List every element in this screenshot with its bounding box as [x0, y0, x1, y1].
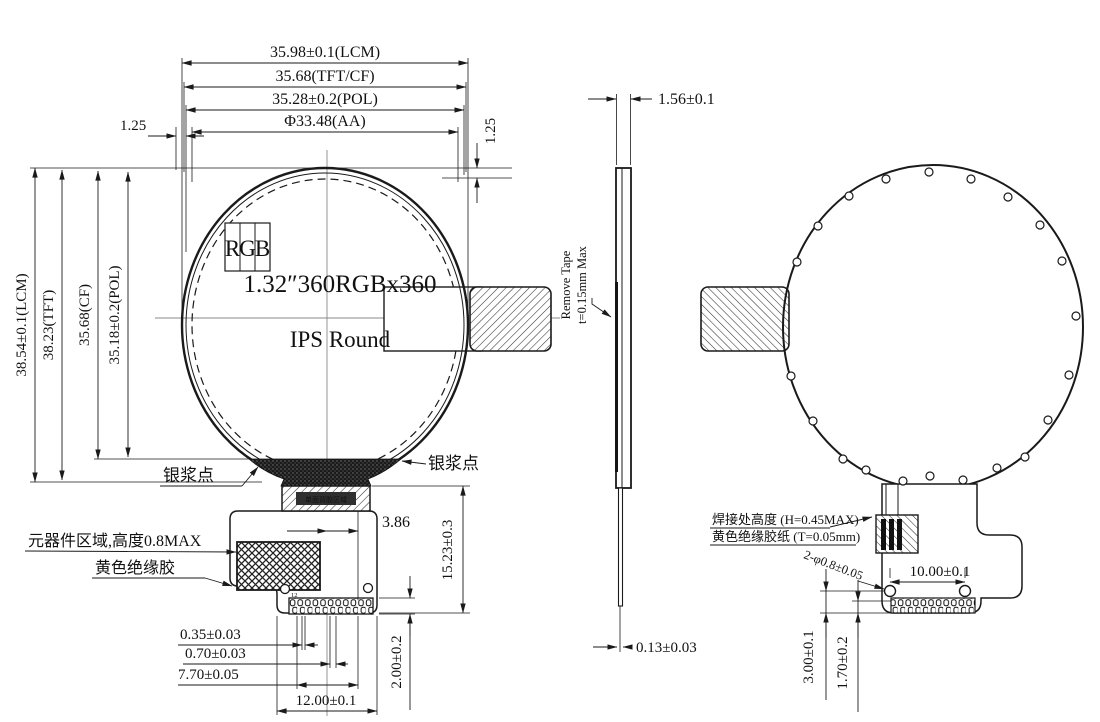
dim-lcm-width: 35.98±0.1(LCM): [270, 44, 380, 61]
rgb-g: G: [239, 236, 256, 261]
front-left-dimensions: 38.54±0.1(LCM) 38.23(TFT) 35.68(CF) 35.1…: [14, 168, 128, 482]
remove-tape-line2: t=0.15mm Max: [575, 245, 589, 324]
yellow-glue-label: 黄色绝缘胶: [95, 559, 175, 577]
back-bottom-dimensions: 3.00±0.1 1.70±0.2: [801, 569, 891, 712]
yellow-tape-label: 黄色绝缘胶纸 (T=0.05mm): [712, 529, 860, 544]
dim-pol-width: 35.28±0.2(POL): [272, 91, 378, 108]
component-area-labels: 元器件区域,高度0.8MAX 黄色绝缘胶: [25, 532, 236, 586]
dim-770: 7.70±0.05: [178, 667, 239, 683]
dim-pol-height: 35.18±0.2(POL): [107, 265, 123, 364]
adhesive-bar-label: 单面背胶区域: [305, 495, 347, 504]
dim-125-right: 1.25: [483, 118, 499, 144]
hole-callout: 2-φ0.8±0.05: [802, 548, 884, 589]
dim-1000: 10.00±0.1: [910, 564, 971, 580]
rgb-b: B: [255, 236, 270, 261]
component-area-rect: [237, 542, 320, 590]
dim-tftcf-width: 35.68(TFT/CF): [275, 68, 374, 85]
fpc-tab-back: [701, 287, 789, 351]
dim-1200: 12.00±0.1: [296, 693, 357, 709]
fpc-tail-side: [619, 488, 623, 606]
solder-labels: 焊接处高度 (H=0.45MAX) 黄色绝缘胶纸 (T=0.05mm): [710, 512, 872, 545]
silver-dots: [787, 168, 1080, 485]
dim-125-left: 1.25: [120, 118, 146, 134]
glass-stack: [616, 168, 631, 488]
connector-back: [891, 598, 975, 613]
side-view: 1.56±0.1 Remove Tape t=0.15mm Max 0.13±0…: [559, 91, 715, 656]
front-view: 单面背胶区域 12 R G B 1.32″360RGBx360 IPS Roun…: [14, 44, 560, 716]
remove-tape-line1: Remove Tape: [559, 250, 573, 319]
dim-386: 3.86: [382, 514, 410, 531]
hole-spec-label: 2-φ0.8±0.05: [802, 548, 865, 583]
silver-paste-right-label: 银浆点: [428, 454, 479, 473]
silver-paste-band: [249, 459, 401, 486]
connector-front: [289, 598, 373, 614]
drawing-sheet: 单面背胶区域 12 R G B 1.32″360RGBx360 IPS Roun…: [0, 0, 1100, 722]
lcd-outline-drawing: 单面背胶区域 12 R G B 1.32″360RGBx360 IPS Roun…: [0, 0, 1100, 722]
fpc-tab-front: [470, 287, 551, 351]
fpc-hole-12: [960, 586, 971, 597]
alignment-hole-right: [364, 584, 373, 593]
dim-1523-group: 15.23±0.3: [372, 486, 470, 613]
dim-070: 0.70±0.03: [185, 646, 246, 662]
side-dim-013-group: 0.13±0.03: [593, 606, 697, 656]
side-dim-156-group: 1.56±0.1: [588, 91, 715, 165]
front-top-dimensions: 35.98±0.1(LCM) 35.68(TFT/CF) 35.28±0.2(P…: [120, 44, 499, 203]
fpc-hole-1: [885, 586, 896, 597]
tape-layer: [615, 282, 618, 472]
alignment-hole-left: [281, 585, 290, 594]
rgb-stripe-box: R G B: [225, 223, 270, 271]
remove-tape-label: Remove Tape t=0.15mm Max: [559, 245, 611, 324]
dim-035: 0.35±0.03: [180, 627, 241, 643]
dim-cf-height: 35.68(CF): [77, 284, 93, 346]
back-outline: [783, 165, 1083, 489]
dim-lcm-height: 38.54±0.1(LCM): [14, 273, 30, 376]
dim-013: 0.13±0.03: [636, 640, 697, 656]
dim-aa-diameter: Φ33.48(AA): [284, 113, 365, 130]
dim-170: 1.70±0.2: [835, 636, 851, 689]
panel-subtitle: IPS Round: [290, 327, 391, 352]
solder-height-label: 焊接处高度 (H=0.45MAX): [712, 512, 859, 527]
dim-156: 1.56±0.1: [658, 91, 715, 108]
dim-200: 2.00±0.2: [389, 635, 405, 688]
component-area-label: 元器件区域,高度0.8MAX: [28, 532, 202, 550]
panel-title: 1.32″360RGBx360: [243, 271, 436, 298]
back-view: 焊接处高度 (H=0.45MAX) 黄色绝缘胶纸 (T=0.05mm) 2-φ0…: [701, 165, 1083, 712]
dim-300: 3.00±0.1: [801, 630, 817, 683]
dim-1523: 15.23±0.3: [440, 520, 456, 581]
dim-tft-height: 38.23(TFT): [41, 290, 57, 360]
silver-paste-left-label: 银浆点: [163, 466, 214, 485]
